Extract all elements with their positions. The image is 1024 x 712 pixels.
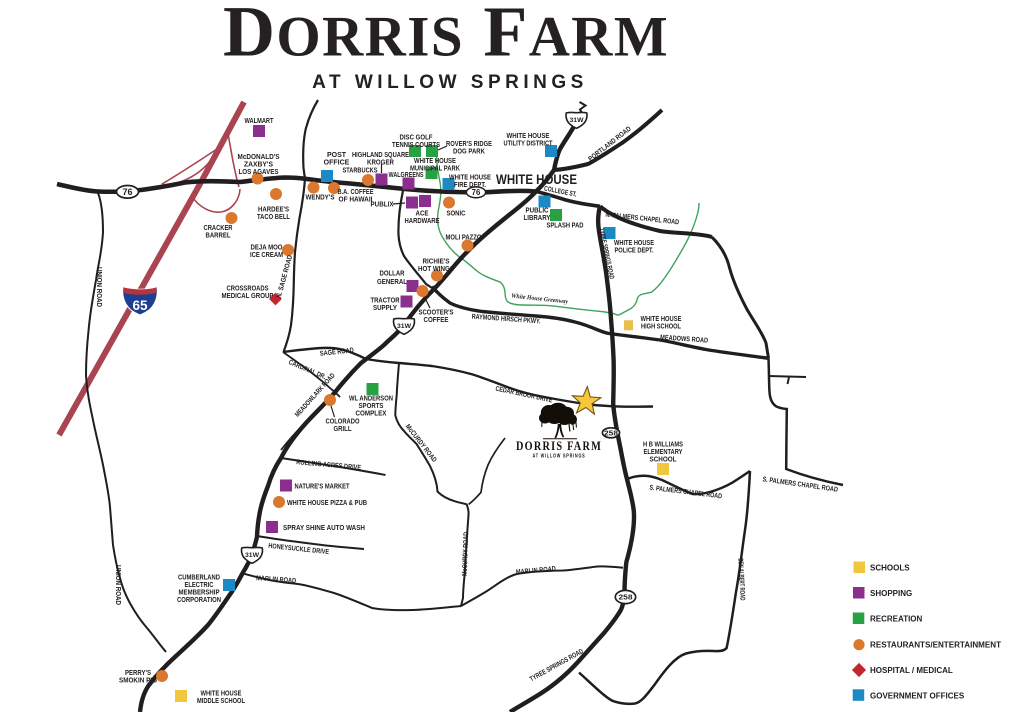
svg-text:McDONALD'S: McDONALD'S (238, 154, 280, 161)
svg-text:AT WILLOW SPRINGS: AT WILLOW SPRINGS (312, 72, 588, 93)
svg-text:UNION ROAD: UNION ROAD (95, 267, 102, 307)
svg-text:MOLI PAZZO: MOLI PAZZO (446, 235, 482, 242)
svg-text:CRACKER: CRACKER (204, 225, 233, 232)
svg-text:ROVER'S RIDGE: ROVER'S RIDGE (446, 141, 492, 148)
svg-text:WL ANDERSON: WL ANDERSON (349, 396, 393, 403)
svg-text:ELEMENTARY: ELEMENTARY (644, 449, 683, 456)
svg-text:PERRY'S: PERRY'S (125, 670, 151, 677)
svg-text:DOLLAR: DOLLAR (380, 271, 405, 278)
svg-text:BARREL: BARREL (206, 233, 232, 240)
svg-text:MEMBERSHIP: MEMBERSHIP (179, 590, 220, 597)
svg-text:ZAXBY'S: ZAXBY'S (244, 162, 273, 169)
svg-text:LIBRARY: LIBRARY (524, 215, 551, 222)
svg-text:HARDWARE: HARDWARE (405, 218, 440, 225)
svg-text:WHITE HOUSE: WHITE HOUSE (414, 158, 456, 165)
svg-text:WALMART: WALMART (245, 118, 275, 125)
svg-text:AT WILLOW SPRINGS: AT WILLOW SPRINGS (533, 454, 586, 460)
svg-text:258: 258 (619, 593, 633, 602)
svg-text:HOSPITAL / MEDICAL: HOSPITAL / MEDICAL (870, 666, 953, 675)
svg-text:ACE: ACE (416, 211, 429, 218)
svg-text:STARBUCKS: STARBUCKS (343, 168, 378, 175)
svg-text:258: 258 (604, 428, 618, 437)
svg-text:UNION ROAD: UNION ROAD (114, 565, 121, 605)
svg-text:NATURE'S MARKET: NATURE'S MARKET (295, 484, 351, 491)
svg-text:MIDDLE SCHOOL: MIDDLE SCHOOL (197, 698, 246, 705)
svg-text:GRILL: GRILL (334, 426, 353, 433)
svg-text:SMOKIN PIG: SMOKIN PIG (119, 678, 157, 685)
svg-text:PUBLIC: PUBLIC (526, 208, 549, 215)
svg-text:SCOOTER'S: SCOOTER'S (419, 310, 454, 317)
svg-text:WHITE HOUSE: WHITE HOUSE (614, 240, 654, 247)
svg-text:WHITE HOUSE: WHITE HOUSE (201, 691, 242, 698)
svg-text:HOT WINGS: HOT WINGS (418, 266, 454, 273)
svg-text:DOG PARK: DOG PARK (453, 149, 485, 156)
svg-text:COFFEE: COFFEE (424, 317, 449, 324)
svg-text:31W: 31W (570, 117, 585, 124)
svg-text:UTILITY DISTRICT: UTILITY DISTRICT (504, 141, 554, 148)
svg-text:PUBLIX: PUBLIX (371, 202, 394, 209)
svg-text:RESTAURANTS/ENTERTAINMENT: RESTAURANTS/ENTERTAINMENT (870, 641, 1001, 650)
svg-text:HIGHLAND SQUARE: HIGHLAND SQUARE (352, 152, 409, 159)
svg-text:COLORADO: COLORADO (326, 419, 360, 426)
svg-text:OFFICE: OFFICE (324, 160, 350, 167)
svg-text:CUMBERLAND: CUMBERLAND (178, 575, 220, 582)
svg-text:WHITE HOUSE: WHITE HOUSE (496, 172, 577, 187)
svg-text:SCHOOLS: SCHOOLS (870, 564, 910, 573)
svg-text:WENDY'S: WENDY'S (306, 195, 335, 202)
svg-text:SPLASH PAD: SPLASH PAD (547, 223, 584, 230)
svg-text:DORRIS FARM: DORRIS FARM (223, 0, 669, 72)
svg-text:ELECTRIC: ELECTRIC (185, 582, 214, 589)
svg-text:POLICE DEPT.: POLICE DEPT. (615, 248, 654, 255)
svg-text:WHITE HOUSE: WHITE HOUSE (641, 316, 682, 323)
svg-text:TACO BELL: TACO BELL (257, 214, 291, 221)
svg-text:DEJA MOO: DEJA MOO (251, 245, 283, 252)
svg-text:HIGH SCHOOL: HIGH SCHOOL (641, 324, 682, 331)
svg-text:GENERAL: GENERAL (377, 279, 408, 286)
svg-text:65: 65 (132, 298, 148, 313)
svg-text:DORRIS FARM: DORRIS FARM (516, 439, 602, 453)
svg-text:B.A. COFFEE: B.A. COFFEE (338, 189, 374, 196)
svg-text:WHITE HOUSE: WHITE HOUSE (449, 175, 491, 182)
svg-text:TRACTOR: TRACTOR (371, 298, 400, 305)
svg-text:CROSSROADS: CROSSROADS (227, 286, 269, 293)
svg-text:FIRE DEPT.: FIRE DEPT. (454, 182, 486, 189)
svg-text:31W: 31W (397, 323, 412, 330)
svg-text:COMPLEX: COMPLEX (356, 411, 387, 418)
svg-text:RECREATION: RECREATION (870, 615, 923, 624)
svg-text:SPRAY SHINE AUTO WASH: SPRAY SHINE AUTO WASH (283, 525, 365, 532)
svg-text:LOS AGAVES: LOS AGAVES (239, 169, 279, 176)
svg-text:76: 76 (122, 187, 132, 197)
svg-text:WHITE HOUSE PIZZA & PUB: WHITE HOUSE PIZZA & PUB (287, 500, 367, 507)
svg-text:HARDEE'S: HARDEE'S (258, 207, 289, 214)
svg-text:SUPPLY: SUPPLY (373, 305, 397, 312)
svg-text:OF HAWAII: OF HAWAII (339, 197, 373, 204)
svg-text:TENNIS COURTS: TENNIS COURTS (392, 142, 440, 149)
svg-text:POST: POST (327, 152, 347, 159)
svg-text:WHITE HOUSE: WHITE HOUSE (507, 133, 550, 140)
svg-text:31W: 31W (245, 552, 260, 559)
svg-text:SHOPPING: SHOPPING (870, 589, 912, 598)
svg-text:CORPORATION: CORPORATION (177, 597, 221, 604)
svg-text:DISC GOLF: DISC GOLF (400, 135, 434, 142)
svg-text:WALGREENS: WALGREENS (389, 172, 424, 179)
svg-text:RICHIE'S: RICHIE'S (423, 259, 450, 266)
svg-text:H B WILLIAMS: H B WILLIAMS (643, 442, 683, 449)
svg-text:GOVERNMENT OFFICES: GOVERNMENT OFFICES (870, 691, 965, 700)
svg-text:ICE CREAM: ICE CREAM (250, 252, 283, 259)
svg-text:KROGER: KROGER (367, 160, 394, 167)
svg-text:SONIC: SONIC (447, 211, 466, 218)
svg-text:MEDICAL GROUP: MEDICAL GROUP (222, 293, 274, 300)
svg-text:76: 76 (472, 188, 481, 197)
svg-text:SPORTS: SPORTS (359, 403, 384, 410)
svg-text:SCHOOL: SCHOOL (650, 457, 678, 464)
